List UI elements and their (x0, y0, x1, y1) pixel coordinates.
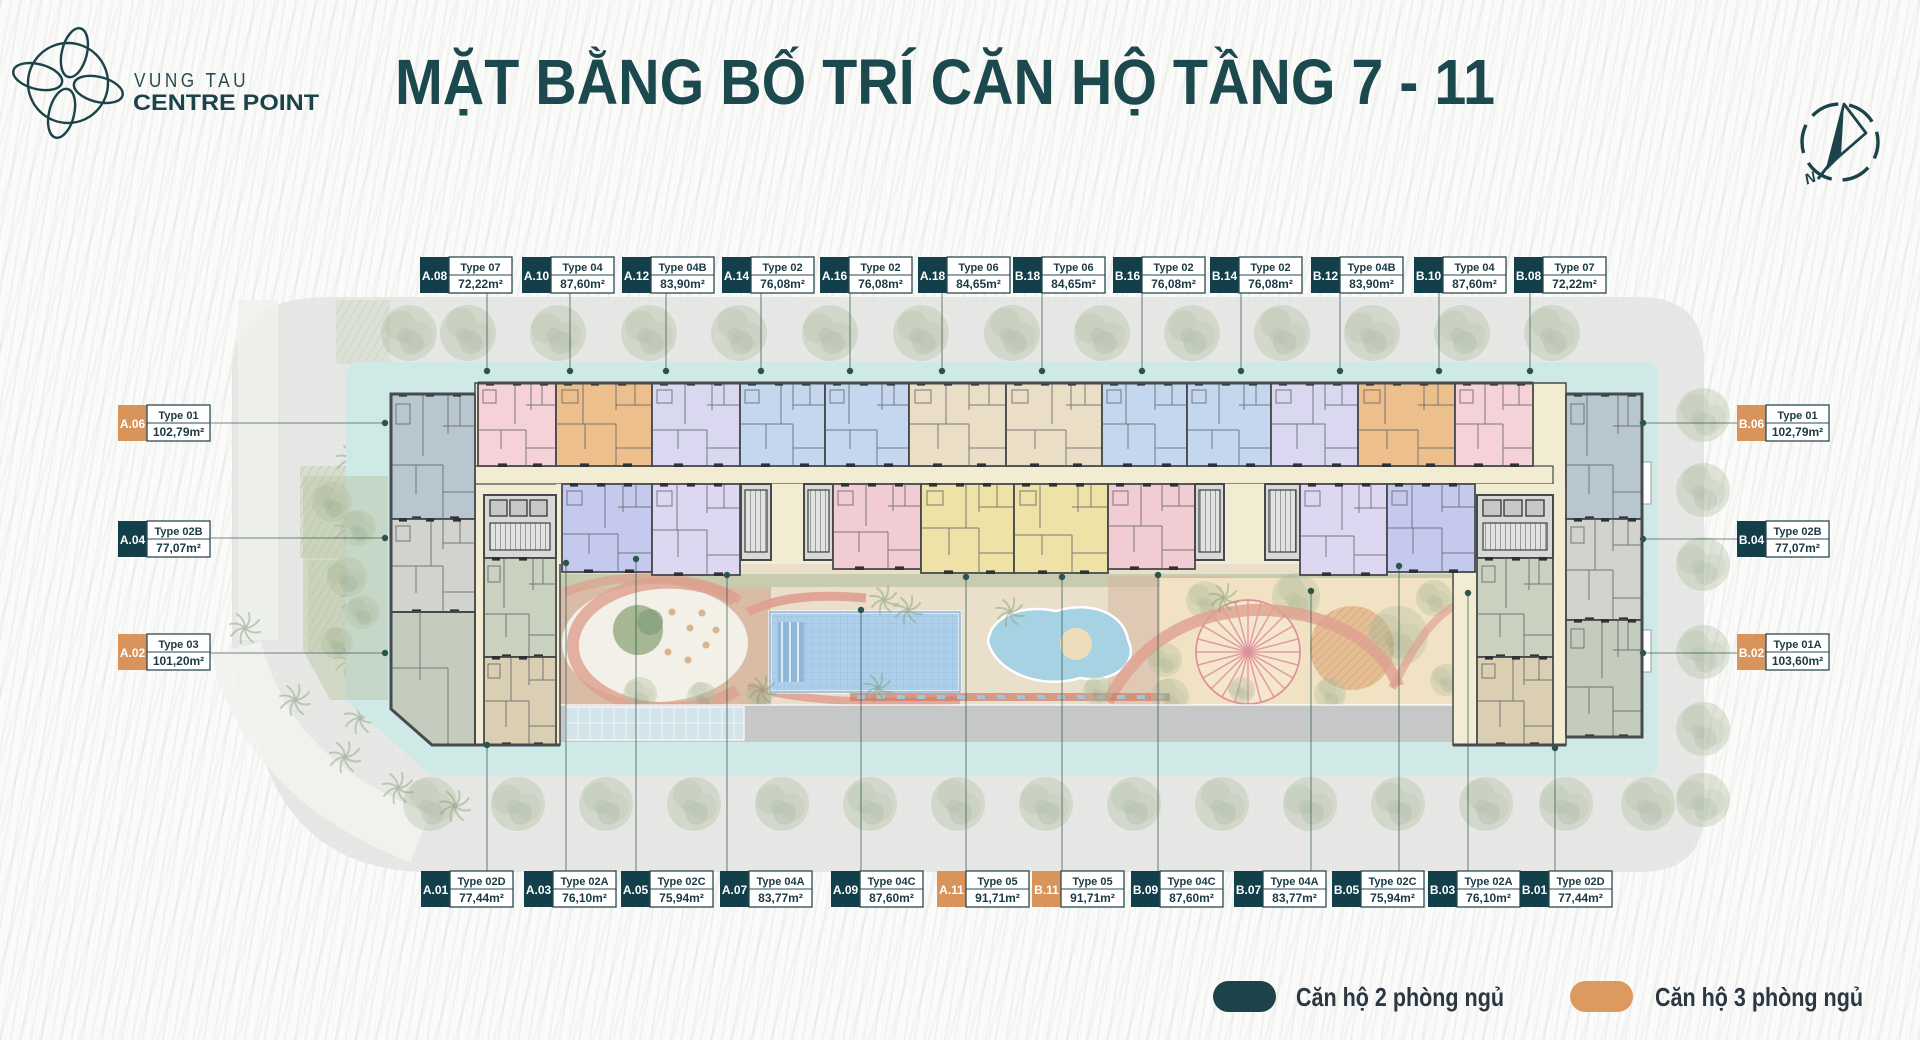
svg-text:A.05: A.05 (623, 883, 649, 897)
svg-text:83,90m²: 83,90m² (660, 277, 705, 291)
svg-text:84,65m²: 84,65m² (1051, 277, 1096, 291)
svg-text:A.02: A.02 (120, 646, 146, 660)
svg-text:Type 02C: Type 02C (1368, 876, 1416, 888)
svg-text:Type 05: Type 05 (1072, 876, 1112, 888)
svg-text:B.10: B.10 (1416, 269, 1442, 283)
svg-text:Type 01: Type 01 (1777, 410, 1817, 422)
svg-text:Type 02: Type 02 (1250, 262, 1290, 274)
svg-text:Type 04A: Type 04A (756, 876, 804, 888)
svg-text:Type 07: Type 07 (460, 262, 500, 274)
svg-text:Type 02B: Type 02B (1773, 526, 1821, 538)
svg-text:Type 04B: Type 04B (658, 262, 706, 274)
svg-text:B.05: B.05 (1334, 883, 1360, 897)
svg-text:B.08: B.08 (1516, 269, 1542, 283)
svg-text:Type 01: Type 01 (158, 410, 198, 422)
svg-text:A.10: A.10 (524, 269, 550, 283)
svg-text:Type 04A: Type 04A (1270, 876, 1318, 888)
svg-text:A.07: A.07 (722, 883, 748, 897)
svg-text:B.02: B.02 (1739, 646, 1765, 660)
svg-text:76,08m²: 76,08m² (858, 277, 903, 291)
svg-text:103,60m²: 103,60m² (1772, 654, 1823, 668)
svg-text:Type 07: Type 07 (1554, 262, 1594, 274)
svg-text:76,08m²: 76,08m² (760, 277, 805, 291)
svg-text:B.18: B.18 (1015, 269, 1041, 283)
svg-text:B.03: B.03 (1430, 883, 1456, 897)
svg-text:Type 02D: Type 02D (457, 876, 505, 888)
svg-text:75,94m²: 75,94m² (1370, 891, 1415, 905)
svg-text:A.14: A.14 (724, 269, 750, 283)
svg-text:Type 02B: Type 02B (154, 526, 202, 538)
svg-text:84,65m²: 84,65m² (956, 277, 1001, 291)
svg-text:75,94m²: 75,94m² (659, 891, 704, 905)
svg-text:Type 02D: Type 02D (1556, 876, 1604, 888)
svg-text:B.07: B.07 (1236, 883, 1262, 897)
svg-text:102,79m²: 102,79m² (153, 425, 204, 439)
svg-text:102,79m²: 102,79m² (1772, 425, 1823, 439)
svg-text:VUNG TAU: VUNG TAU (134, 70, 249, 92)
svg-text:Type 02C: Type 02C (657, 876, 705, 888)
svg-text:Type 03: Type 03 (158, 639, 198, 651)
svg-text:72,22m²: 72,22m² (1552, 277, 1597, 291)
svg-text:A.11: A.11 (939, 883, 964, 897)
svg-text:Căn hộ 3 phòng ngủ: Căn hộ 3 phòng ngủ (1655, 982, 1863, 1012)
svg-text:76,10m²: 76,10m² (1466, 891, 1511, 905)
svg-text:CENTRE POINT: CENTRE POINT (133, 90, 320, 115)
svg-text:B.11: B.11 (1034, 883, 1059, 897)
svg-text:B.01: B.01 (1522, 883, 1548, 897)
svg-text:MẶT BẰNG BỐ TRÍ CĂN HỘ TẦNG 7: MẶT BẰNG BỐ TRÍ CĂN HỘ TẦNG 7 - 11 (395, 45, 1495, 118)
svg-text:101,20m²: 101,20m² (153, 654, 204, 668)
svg-text:87,60m²: 87,60m² (1169, 891, 1214, 905)
svg-text:87,60m²: 87,60m² (1452, 277, 1497, 291)
svg-text:87,60m²: 87,60m² (869, 891, 914, 905)
svg-text:72,22m²: 72,22m² (458, 277, 503, 291)
svg-text:Type 01A: Type 01A (1773, 639, 1821, 651)
svg-text:91,71m²: 91,71m² (1070, 891, 1115, 905)
svg-text:B.14: B.14 (1212, 269, 1238, 283)
svg-text:Type 04C: Type 04C (1167, 876, 1215, 888)
svg-text:83,77m²: 83,77m² (758, 891, 803, 905)
svg-text:A.16: A.16 (822, 269, 848, 283)
svg-text:Type 06: Type 06 (1053, 262, 1093, 274)
svg-text:A.01: A.01 (423, 883, 449, 897)
svg-text:A.03: A.03 (526, 883, 552, 897)
svg-text:91,71m²: 91,71m² (975, 891, 1020, 905)
svg-text:76,08m²: 76,08m² (1151, 277, 1196, 291)
svg-text:Type 02A: Type 02A (560, 876, 608, 888)
svg-text:Căn hộ 2 phòng ngủ: Căn hộ 2 phòng ngủ (1296, 982, 1504, 1012)
svg-text:B.04: B.04 (1739, 533, 1765, 547)
svg-text:Type 02: Type 02 (762, 262, 802, 274)
svg-text:Type 06: Type 06 (958, 262, 998, 274)
svg-text:Type 04: Type 04 (562, 262, 603, 274)
svg-text:77,07m²: 77,07m² (156, 541, 201, 555)
svg-text:B.06: B.06 (1739, 417, 1765, 431)
svg-text:B.09: B.09 (1133, 883, 1159, 897)
svg-text:A.06: A.06 (120, 417, 146, 431)
svg-text:A.12: A.12 (624, 269, 650, 283)
svg-text:83,77m²: 83,77m² (1272, 891, 1317, 905)
svg-text:77,07m²: 77,07m² (1775, 541, 1820, 555)
svg-text:83,90m²: 83,90m² (1349, 277, 1394, 291)
svg-text:A.04: A.04 (120, 533, 146, 547)
svg-text:87,60m²: 87,60m² (560, 277, 605, 291)
svg-text:Type 04C: Type 04C (867, 876, 915, 888)
svg-text:Type 04: Type 04 (1454, 262, 1495, 274)
svg-text:Type 04B: Type 04B (1347, 262, 1395, 274)
svg-text:A.08: A.08 (422, 269, 448, 283)
svg-text:Type 02: Type 02 (1153, 262, 1193, 274)
svg-text:76,08m²: 76,08m² (1248, 277, 1293, 291)
svg-text:A.18: A.18 (920, 269, 946, 283)
svg-text:76,10m²: 76,10m² (562, 891, 607, 905)
svg-text:Type 02: Type 02 (860, 262, 900, 274)
svg-text:Type 02A: Type 02A (1464, 876, 1512, 888)
svg-text:B.16: B.16 (1115, 269, 1141, 283)
svg-text:77,44m²: 77,44m² (459, 891, 504, 905)
svg-text:77,44m²: 77,44m² (1558, 891, 1603, 905)
svg-text:B.12: B.12 (1313, 269, 1339, 283)
svg-text:A.09: A.09 (833, 883, 859, 897)
svg-text:Type 05: Type 05 (977, 876, 1017, 888)
